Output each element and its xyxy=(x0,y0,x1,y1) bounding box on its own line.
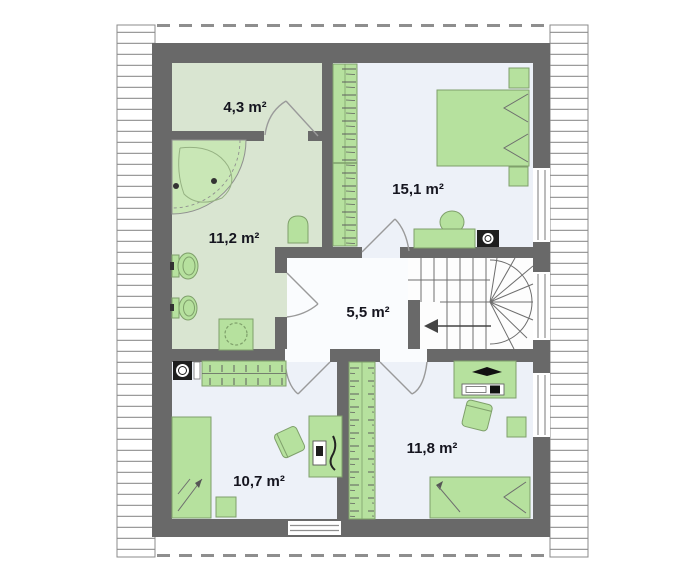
single-bed-icon xyxy=(172,417,211,518)
label-wardrobe-room: 4,3 m² xyxy=(223,99,266,116)
nightstand-icon xyxy=(509,167,528,186)
desk-icon xyxy=(309,416,342,477)
roof-hatch-right xyxy=(550,25,588,557)
label-bedroom-right: 11,8 m² xyxy=(407,440,458,457)
washbasin-icon xyxy=(288,216,308,243)
computer-icon xyxy=(477,230,499,247)
floor-plan-page: 4,3 m² 11,2 m² 15,1 m² 5,5 m² 10,7 m² 11… xyxy=(0,0,700,575)
toilet-icon xyxy=(170,253,198,279)
label-bedroom-large: 15,1 m² xyxy=(392,181,444,198)
cabinet-icon xyxy=(194,362,200,379)
floor-hall xyxy=(287,247,408,350)
single-bed-icon xyxy=(430,477,530,518)
label-bathroom: 11,2 m² xyxy=(209,230,260,247)
washing-machine-icon xyxy=(173,361,192,380)
window-right-bedroom-large xyxy=(533,168,550,242)
window-right-bedroom-right xyxy=(533,373,550,437)
label-hall: 5,5 m² xyxy=(346,304,389,321)
bidet-icon xyxy=(170,296,197,320)
window-bottom-bedroom-left xyxy=(288,521,341,535)
nightstand-icon xyxy=(507,417,526,437)
desk-icon xyxy=(414,229,475,248)
label-bedroom-left: 10,7 m² xyxy=(233,473,285,490)
floor-stairs xyxy=(408,258,533,349)
dresser-icon xyxy=(202,361,286,386)
shower-stool-icon xyxy=(219,319,253,350)
floor-plan: 4,3 m² 11,2 m² 15,1 m² 5,5 m² 10,7 m² 11… xyxy=(0,0,700,575)
desk-icon xyxy=(454,361,516,398)
wardrobe-icon xyxy=(349,362,375,519)
nightstand-icon xyxy=(216,497,236,517)
window-right-stairs xyxy=(533,272,550,340)
roof-hatch-left xyxy=(117,25,155,557)
closet-icon xyxy=(333,64,357,246)
nightstand-icon xyxy=(509,68,529,88)
